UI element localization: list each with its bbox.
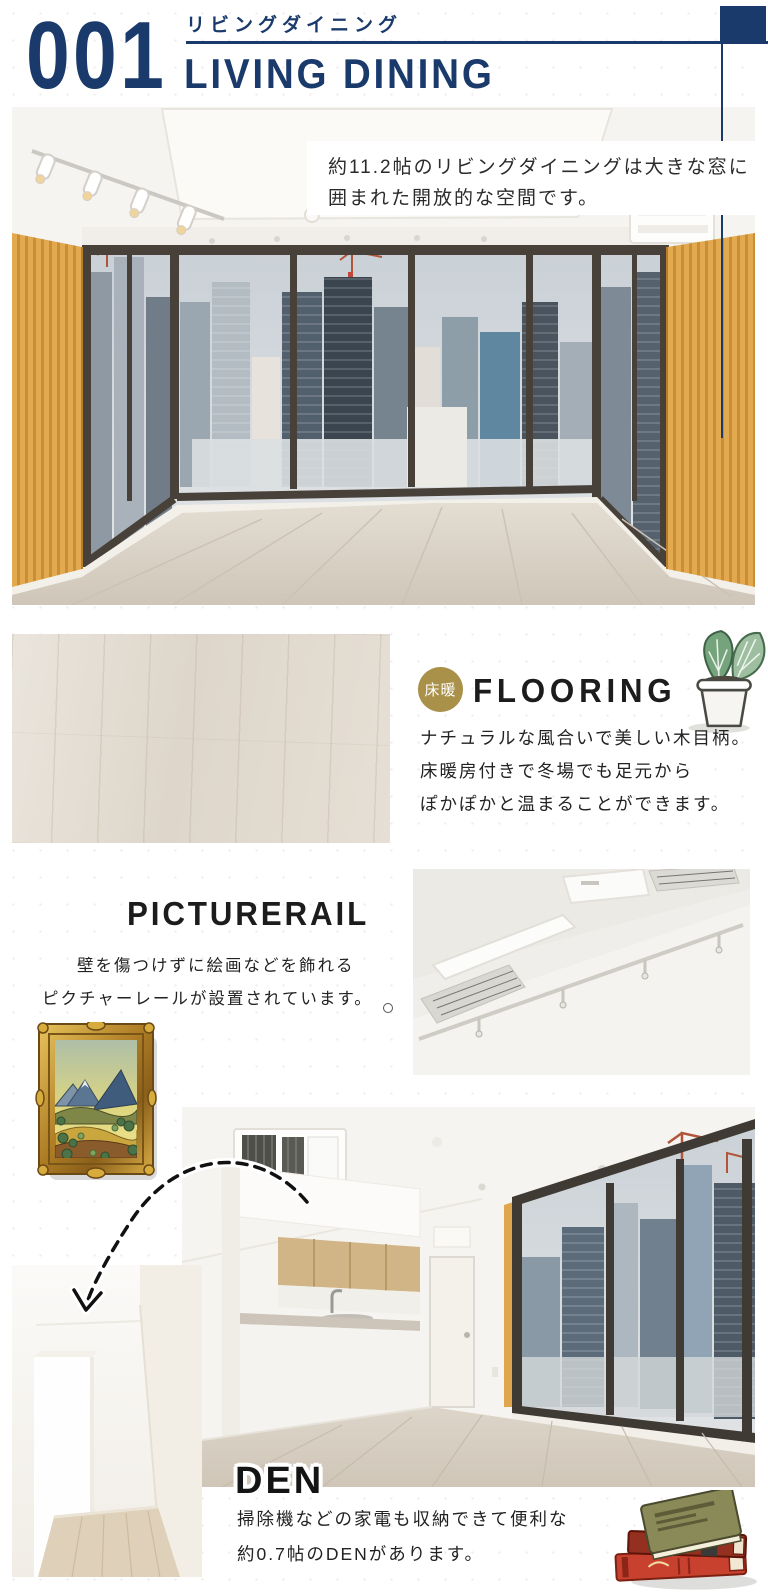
den-desc-line2: 約0.7帖のDENがあります。: [237, 1537, 569, 1572]
den-heading: DEN: [235, 1460, 324, 1503]
left-curtain: [12, 233, 82, 587]
section-title-japanese: リビングダイニング: [186, 10, 402, 37]
flooring-desc-line3: ぽかぽかと温まることができます。: [420, 788, 751, 821]
picturerail-heading: PICTURERAIL: [127, 895, 369, 933]
flooring-description: ナチュラルな風合いで美しい木目柄。 床暖房付きで冬場でも足元から ぽかぽかと温ま…: [420, 722, 751, 821]
corner-square-decoration: [720, 6, 766, 44]
section-title-english: LIVING DINING: [184, 50, 495, 98]
books-icon: [608, 1490, 765, 1592]
picturerail-desc-line2: ピクチャーレールが設置されています。: [42, 985, 373, 1009]
picturerail-desc-line1: 壁を傷つけずに絵画などを飾れる: [77, 952, 355, 976]
living-caption-line2: 囲まれた開放的な空間です。: [328, 183, 768, 214]
page: 001 リビングダイニング LIVING DINING: [0, 0, 768, 1596]
dashed-arrow-icon: [55, 1140, 315, 1325]
den-description: 掃除機などの家電も収納できて便利な 約0.7帖のDENがあります。: [237, 1502, 569, 1572]
flooring-photo: [12, 634, 390, 843]
dot-decoration: [383, 1003, 393, 1013]
flooring-heading: FLOORING: [473, 672, 676, 710]
flooring-desc-line1: ナチュラルな風合いで美しい木目柄。: [420, 722, 751, 755]
header-rule: [186, 41, 768, 44]
right-curtain: [667, 233, 755, 587]
vertical-accent-line: [721, 44, 723, 438]
section-number: 001: [26, 8, 167, 104]
floor-heating-badge: 床暖: [418, 667, 463, 712]
living-caption-line1: 約11.2帖のリビングダイニングは大きな窓に: [328, 152, 768, 183]
picture-rail-photo: [413, 869, 750, 1075]
potted-plant-icon: [670, 627, 768, 733]
living-caption: 約11.2帖のリビングダイニングは大きな窓に 囲まれた開放的な空間です。: [307, 141, 768, 215]
den-desc-line1: 掃除機などの家電も収納できて便利な: [237, 1502, 569, 1537]
flooring-desc-line2: 床暖房付きで冬場でも足元から: [420, 755, 751, 788]
